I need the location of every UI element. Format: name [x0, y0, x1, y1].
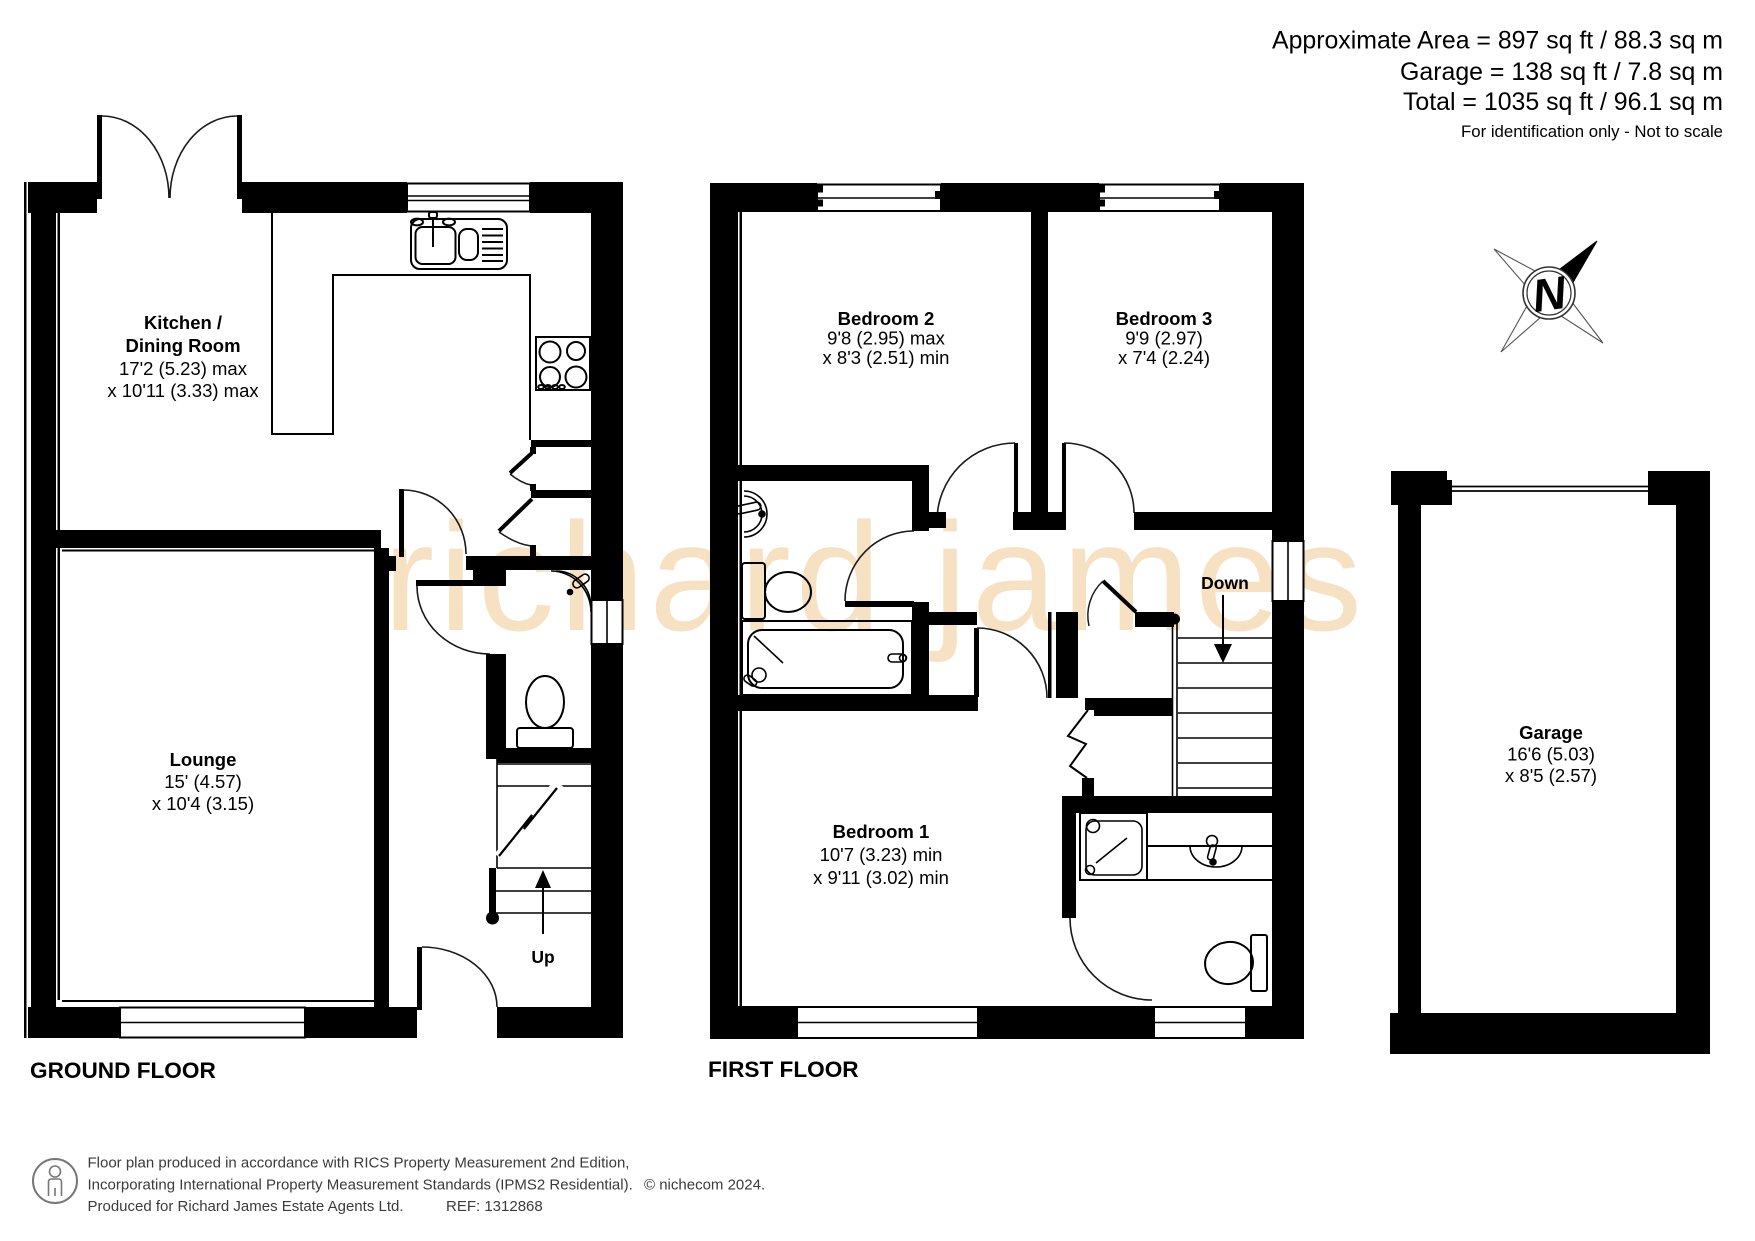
svg-text:Lounge: Lounge: [170, 749, 237, 770]
svg-text:GROUND FLOOR: GROUND FLOOR: [30, 1058, 216, 1083]
svg-text:© nichecom 2024.: © nichecom 2024.: [644, 1177, 765, 1194]
svg-text:x 10'11 (3.33) max: x 10'11 (3.33) max: [107, 380, 259, 401]
svg-text:FIRST FLOOR: FIRST FLOOR: [708, 1057, 859, 1082]
svg-text:x 10'4 (3.15): x 10'4 (3.15): [152, 793, 254, 814]
svg-text:15' (4.57): 15' (4.57): [164, 771, 242, 792]
svg-text:Garage = 138 sq ft / 7.8 sq m: Garage = 138 sq ft / 7.8 sq m: [1400, 58, 1723, 86]
svg-text:17'2 (5.23) max: 17'2 (5.23) max: [119, 358, 248, 379]
svg-text:Bedroom 1: Bedroom 1: [833, 821, 930, 842]
svg-text:Bedroom 2: Bedroom 2: [838, 308, 935, 329]
svg-text:Incorporating International Pr: Incorporating International Property Mea…: [88, 1177, 633, 1194]
svg-text:Down: Down: [1201, 573, 1249, 593]
svg-text:9'8 (2.95) max: 9'8 (2.95) max: [827, 328, 945, 349]
svg-text:For identification only - Not: For identification only - Not to scale: [1461, 122, 1723, 141]
svg-text:Floor plan produced in accorda: Floor plan produced in accordance with R…: [88, 1155, 630, 1172]
svg-text:Total = 1035 sq ft / 96.1 sq m: Total = 1035 sq ft / 96.1 sq m: [1403, 88, 1723, 116]
svg-text:Dining Room: Dining Room: [125, 335, 240, 356]
svg-text:10'7 (3.23) min: 10'7 (3.23) min: [820, 844, 943, 865]
svg-text:Produced for Richard James Est: Produced for Richard James Estate Agents…: [88, 1198, 404, 1215]
svg-text:x 9'11 (3.02) min: x 9'11 (3.02) min: [813, 867, 949, 888]
svg-text:x 8'3 (2.51) min: x 8'3 (2.51) min: [823, 347, 950, 368]
svg-text:9'9 (2.97): 9'9 (2.97): [1125, 328, 1203, 349]
svg-text:16'6 (5.03): 16'6 (5.03): [1507, 744, 1595, 765]
svg-text:Approximate Area = 897 sq ft /: Approximate Area = 897 sq ft / 88.3 sq m: [1272, 27, 1723, 55]
svg-text:REF: 1312868: REF: 1312868: [446, 1198, 543, 1215]
svg-text:Kitchen /: Kitchen /: [144, 312, 222, 333]
svg-text:x 7'4 (2.24): x 7'4 (2.24): [1118, 347, 1210, 368]
svg-text:Up: Up: [531, 947, 554, 967]
svg-text:Garage: Garage: [1519, 722, 1583, 743]
svg-text:x 8'5 (2.57): x 8'5 (2.57): [1505, 765, 1597, 786]
svg-text:Bedroom 3: Bedroom 3: [1116, 308, 1213, 329]
